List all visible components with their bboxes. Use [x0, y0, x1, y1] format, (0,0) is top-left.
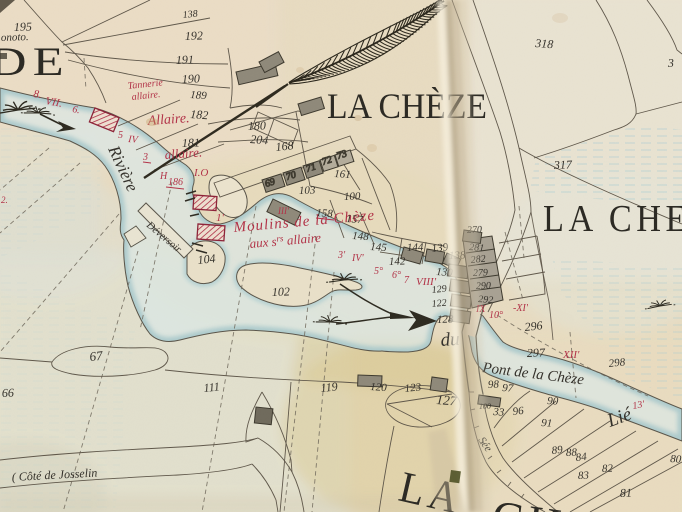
- svg-text:102: 102: [272, 284, 290, 299]
- svg-text:XII': XII': [562, 349, 580, 361]
- svg-text:1': 1': [216, 212, 225, 224]
- svg-text:I.O: I.O: [193, 167, 208, 179]
- svg-text:120: 120: [370, 381, 388, 394]
- svg-text:123: 123: [404, 381, 422, 395]
- svg-text:103: 103: [299, 184, 316, 197]
- svg-text:100: 100: [344, 190, 361, 203]
- svg-text:111: 111: [203, 379, 221, 395]
- svg-text:IV': IV': [351, 253, 364, 264]
- svg-text:138: 138: [182, 8, 198, 21]
- svg-text:67: 67: [89, 348, 104, 364]
- svg-text:96: 96: [512, 405, 525, 418]
- svg-text:81: 81: [620, 486, 632, 500]
- svg-text:3: 3: [667, 56, 674, 70]
- svg-text:66: 66: [2, 386, 14, 400]
- svg-text:191: 191: [176, 52, 194, 67]
- svg-text:189: 189: [190, 89, 208, 102]
- svg-text:89: 89: [551, 444, 564, 457]
- svg-text:III': III': [277, 206, 290, 216]
- svg-text:142: 142: [389, 255, 406, 268]
- svg-text:182: 182: [190, 107, 209, 122]
- svg-text:DE: DE: [0, 39, 70, 84]
- svg-text:82: 82: [602, 463, 614, 475]
- svg-text:LA CHE: LA CHE: [543, 198, 682, 240]
- svg-text:180: 180: [248, 118, 266, 133]
- svg-text:10°: 10°: [489, 310, 503, 321]
- svg-text:83: 83: [578, 470, 590, 482]
- svg-text:181: 181: [182, 135, 200, 150]
- svg-text:33: 33: [492, 406, 505, 419]
- svg-text:122: 122: [431, 297, 447, 310]
- svg-text:161: 161: [334, 168, 351, 181]
- svg-text:318: 318: [534, 36, 554, 51]
- svg-text:80: 80: [670, 453, 682, 466]
- svg-text:97: 97: [502, 382, 514, 395]
- svg-text:204: 204: [250, 132, 269, 147]
- svg-text:144: 144: [407, 241, 424, 254]
- svg-text:119: 119: [320, 379, 338, 395]
- svg-text:5°: 5°: [374, 266, 383, 277]
- svg-text:90: 90: [547, 395, 559, 408]
- svg-text:139: 139: [431, 241, 449, 255]
- svg-text:3': 3': [337, 250, 346, 261]
- svg-text:190: 190: [182, 71, 200, 86]
- svg-text:2.: 2.: [1, 195, 8, 205]
- svg-text:195: 195: [14, 19, 32, 34]
- svg-text:3: 3: [142, 152, 148, 163]
- svg-text:91: 91: [541, 417, 553, 430]
- svg-text:168: 168: [275, 138, 294, 154]
- svg-text:296: 296: [524, 318, 543, 334]
- svg-text:297: 297: [527, 345, 546, 360]
- svg-text:8.: 8.: [33, 88, 43, 101]
- svg-text:298: 298: [608, 356, 626, 370]
- svg-text:-XI': -XI': [513, 303, 529, 314]
- svg-text:148: 148: [352, 230, 370, 243]
- svg-text:192: 192: [185, 28, 203, 43]
- svg-text:186: 186: [168, 177, 183, 188]
- svg-text:317: 317: [553, 157, 573, 172]
- svg-text:98: 98: [488, 379, 500, 391]
- svg-text:6°: 6°: [392, 270, 401, 281]
- svg-text:129: 129: [431, 283, 447, 296]
- svg-text:104: 104: [197, 251, 216, 267]
- svg-text:H: H: [159, 171, 168, 182]
- svg-text:157: 157: [346, 213, 364, 226]
- svg-text:5: 5: [118, 130, 123, 141]
- svg-text:84: 84: [575, 451, 588, 464]
- svg-text:145: 145: [370, 241, 388, 254]
